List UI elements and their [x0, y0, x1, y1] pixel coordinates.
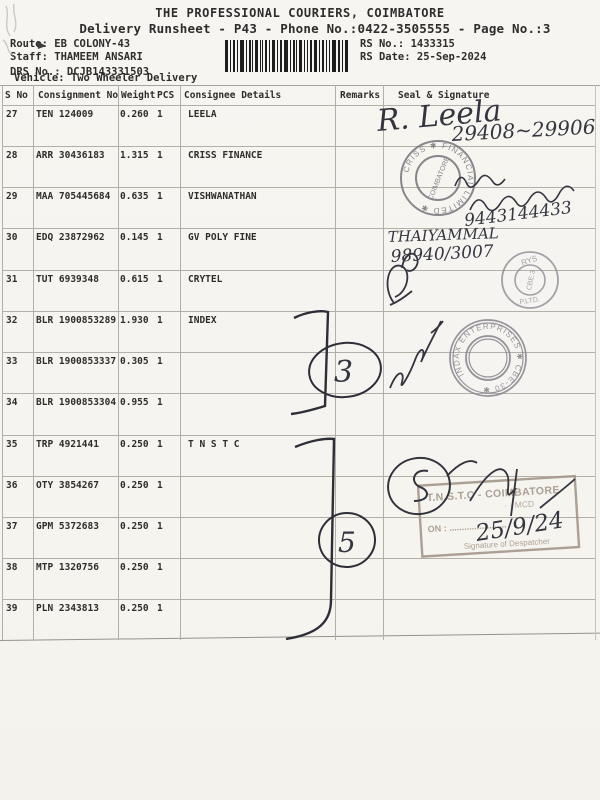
cell-consignee: GV POLY FINE: [188, 232, 257, 243]
cell-consignment: GPM 5372683: [36, 521, 99, 532]
cell-weight: 0.305: [120, 356, 149, 367]
cell-consignment: MTP 1320756: [36, 562, 99, 573]
table-row: 31TUT 69393480.6151CRYTEL: [0, 270, 600, 311]
rs-no-line: RS No.: 1433315: [360, 38, 455, 50]
cell-sno: 27: [6, 109, 17, 120]
rs-no-label: RS No.:: [360, 38, 404, 50]
cell-sno: 29: [6, 191, 17, 202]
cell-consignment: ARR 30436183: [36, 150, 105, 161]
staff-value: THAMEEM ANSARI: [54, 51, 143, 63]
cell-weight: 1.930: [120, 315, 149, 326]
cell-sno: 31: [6, 274, 17, 285]
table-row: 37GPM 53726830.2501: [0, 517, 600, 558]
cell-consignee: VISHWANATHAN: [188, 191, 257, 202]
cell-pcs: 1: [157, 315, 163, 326]
cell-consignee: INDEX: [188, 315, 217, 326]
cell-sno: 36: [6, 480, 17, 491]
cell-weight: 0.635: [120, 191, 149, 202]
vehicle-line: Vehicle: Two Wheeler Delivery: [14, 72, 197, 84]
cell-weight: 0.615: [120, 274, 149, 285]
table-row: 27TEN 1240090.2601LEELA: [0, 105, 600, 146]
barcode-image: [225, 40, 348, 72]
route-value: EB COLONY-43: [54, 38, 130, 50]
cell-pcs: 1: [157, 397, 163, 408]
cell-consignment: TEN 124009: [36, 109, 93, 120]
cell-consignee: LEELA: [188, 109, 217, 120]
cell-consignment: EDQ 23872962: [36, 232, 105, 243]
cell-consignment: OTY 3854267: [36, 480, 99, 491]
cell-consignment: BLR 1900853289: [36, 315, 116, 326]
cell-weight: 0.250: [120, 480, 149, 491]
cell-sno: 39: [6, 603, 17, 614]
rs-date-value: 25-Sep-2024: [417, 51, 487, 63]
staff-label: Staff:: [10, 51, 48, 63]
cell-weight: 0.955: [120, 397, 149, 408]
cell-consignment: PLN 2343813: [36, 603, 99, 614]
table-row: 35TRP 49214410.2501T N S T C: [0, 435, 600, 476]
header-pcs: PCS: [157, 90, 174, 101]
table-row: 32BLR 19008532891.9301INDEX: [0, 311, 600, 352]
cell-pcs: 1: [157, 603, 163, 614]
cell-consignment: TRP 4921441: [36, 439, 99, 450]
cell-sno: 38: [6, 562, 17, 573]
table-row: 36OTY 38542670.2501: [0, 476, 600, 517]
cell-pcs: 1: [157, 480, 163, 491]
cell-pcs: 1: [157, 356, 163, 367]
cell-weight: 0.260: [120, 109, 149, 120]
route-line: Route: EB COLONY-43: [10, 38, 130, 50]
cell-weight: 0.250: [120, 603, 149, 614]
table-row: 34BLR 19008533040.9551: [0, 393, 600, 434]
header-seal: Seal & Signature: [398, 90, 490, 101]
cell-pcs: 1: [157, 191, 163, 202]
cell-pcs: 1: [157, 562, 163, 573]
company-title: THE PROFESSIONAL COURIERS, COIMBATORE: [0, 6, 600, 20]
cell-sno: 28: [6, 150, 17, 161]
delivery-runsheet-page: THE PROFESSIONAL COURIERS, COIMBATORE De…: [0, 0, 600, 800]
table-top-border: [0, 85, 600, 86]
rs-no-value: 1433315: [411, 38, 455, 50]
table-row: 28ARR 304361831.3151CRISS FINANCE: [0, 146, 600, 187]
cell-sno: 30: [6, 232, 17, 243]
cell-consignment: MAA 705445684: [36, 191, 110, 202]
cell-weight: 1.315: [120, 150, 149, 161]
table-row: 33BLR 19008533370.3051: [0, 352, 600, 393]
cell-consignment: BLR 1900853337: [36, 356, 116, 367]
cell-pcs: 1: [157, 150, 163, 161]
header-consignee: Consignee Details: [184, 90, 281, 101]
cell-sno: 37: [6, 521, 17, 532]
cell-pcs: 1: [157, 521, 163, 532]
cell-weight: 0.250: [120, 439, 149, 450]
cell-sno: 34: [6, 397, 17, 408]
rs-date-label: RS Date:: [360, 51, 411, 63]
cell-pcs: 1: [157, 274, 163, 285]
cell-weight: 0.145: [120, 232, 149, 243]
cell-consignment: BLR 1900853304: [36, 397, 116, 408]
cell-consignee: CRYTEL: [188, 274, 222, 285]
header-sno: S No: [5, 90, 28, 101]
cell-pcs: 1: [157, 109, 163, 120]
header-consignment: Consignment No: [38, 90, 118, 101]
vehicle-value: Two Wheeler Delivery: [71, 72, 197, 84]
cell-sno: 33: [6, 356, 17, 367]
cell-sno: 35: [6, 439, 17, 450]
staff-line: Staff: THAMEEM ANSARI: [10, 51, 143, 63]
header-remarks: Remarks: [340, 90, 380, 101]
cell-weight: 0.250: [120, 521, 149, 532]
rs-date-line: RS Date: 25-Sep-2024: [360, 51, 486, 63]
table-row: 39PLN 23438130.2501: [0, 599, 600, 640]
cell-pcs: 1: [157, 232, 163, 243]
table-row: 30EDQ 238729620.1451GV POLY FINE: [0, 228, 600, 269]
cell-consignee: CRISS FINANCE: [188, 150, 262, 161]
runsheet-subtitle: Delivery Runsheet - P43 - Phone No.:0422…: [30, 21, 600, 36]
cell-consignee: T N S T C: [188, 439, 239, 450]
cell-consignment: TUT 6939348: [36, 274, 99, 285]
cell-sno: 32: [6, 315, 17, 326]
vehicle-label: Vehicle:: [14, 72, 65, 84]
cell-pcs: 1: [157, 439, 163, 450]
cell-weight: 0.250: [120, 562, 149, 573]
table-row: 38MTP 13207560.2501: [0, 558, 600, 599]
table-row: 29MAA 7054456840.6351VISHWANATHAN: [0, 187, 600, 228]
header-weight: Weight: [121, 90, 155, 101]
route-label: Route:: [10, 38, 48, 50]
